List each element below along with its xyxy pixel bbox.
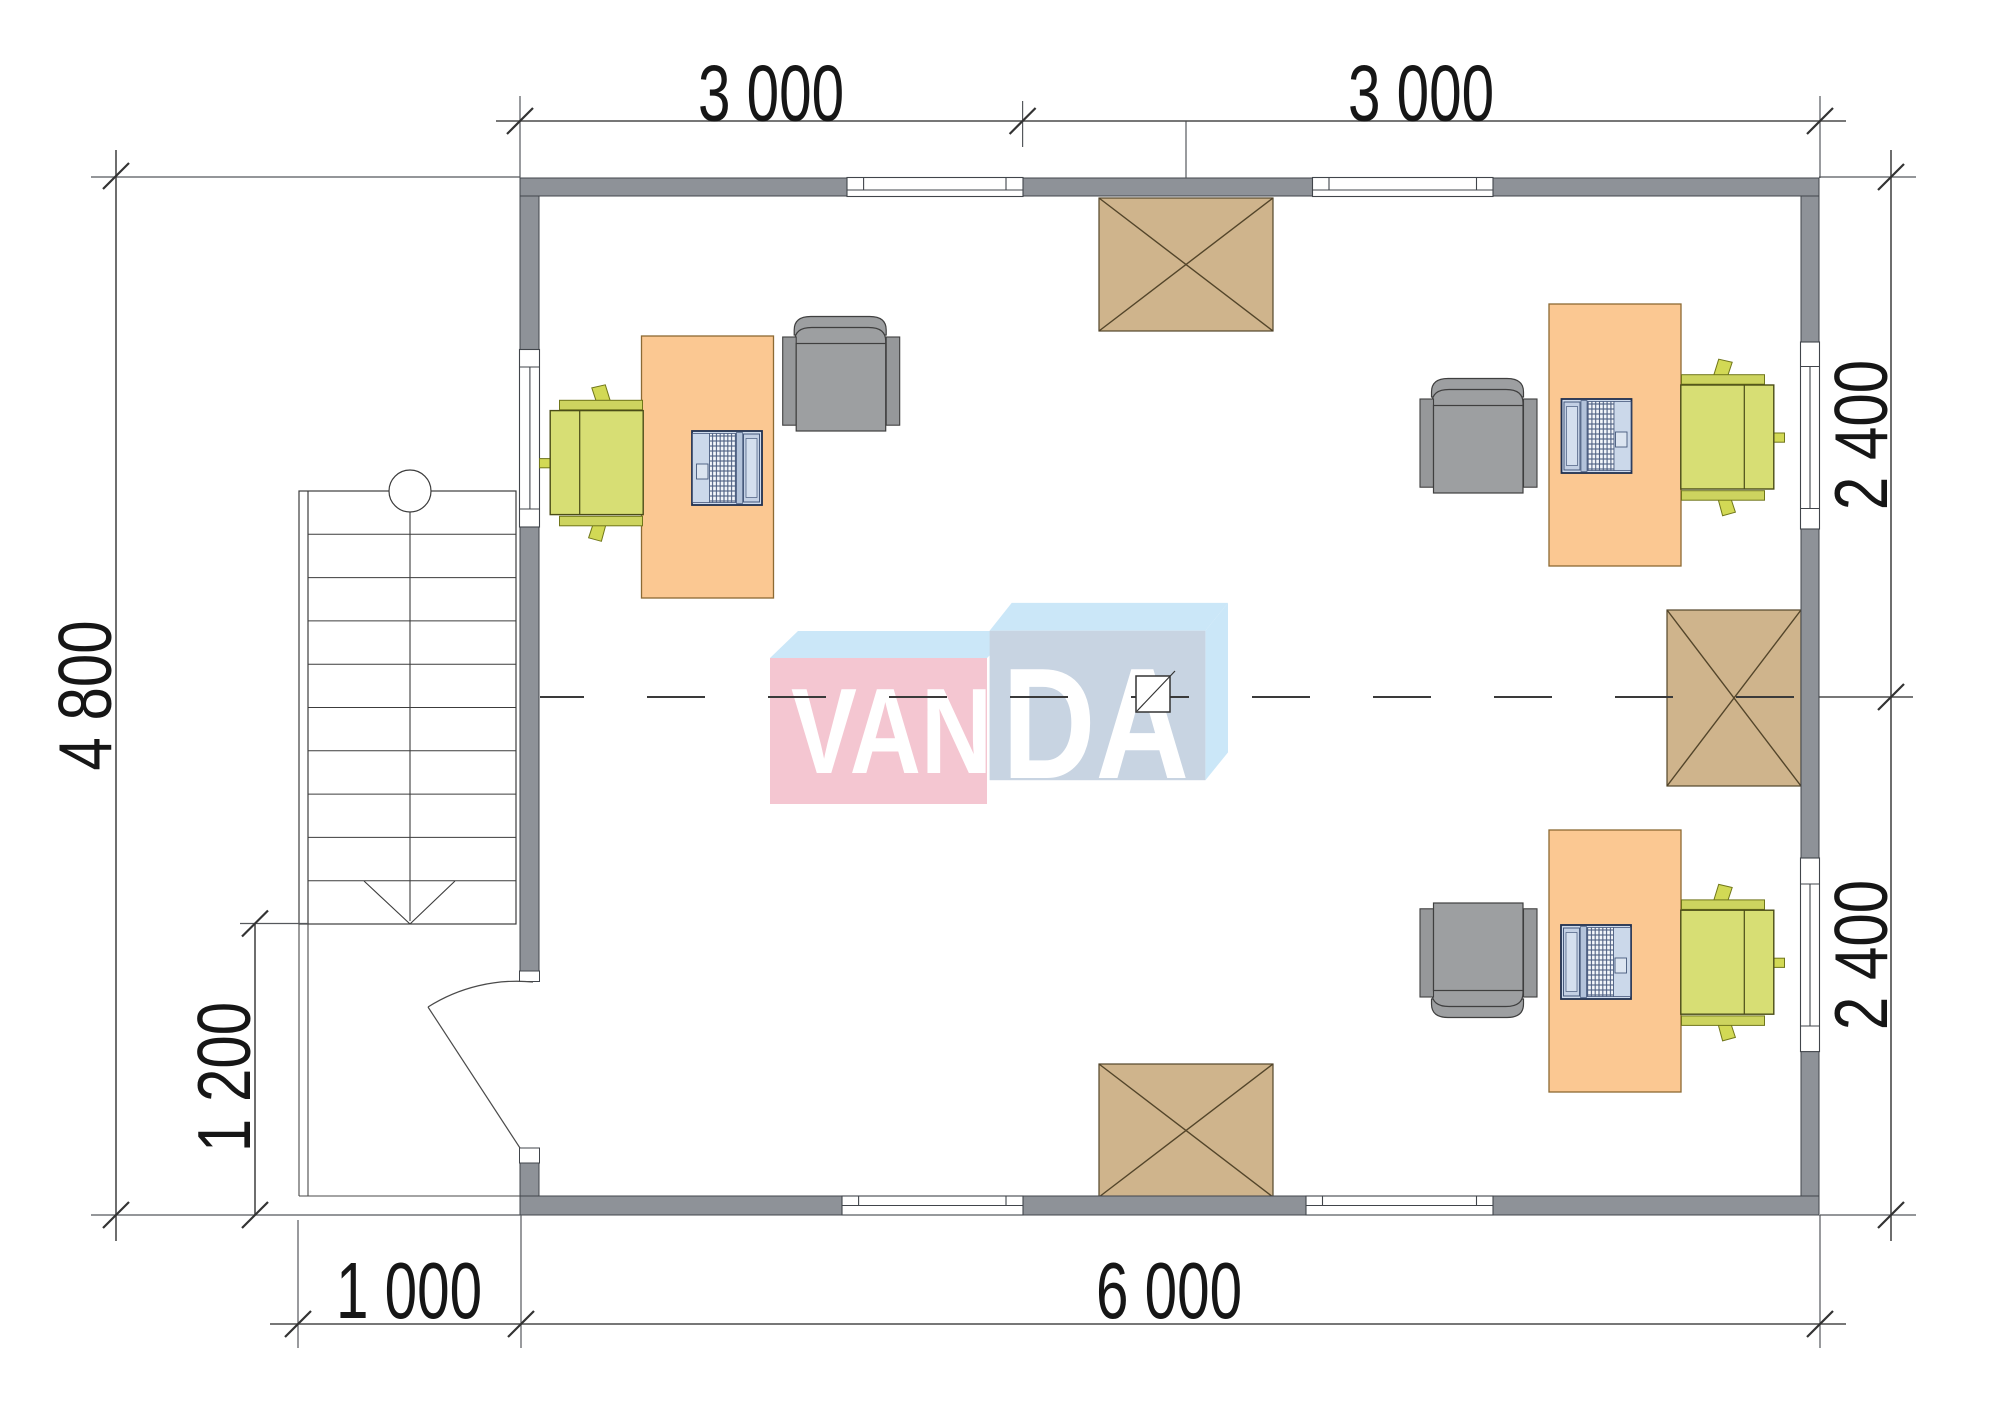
svg-text:DA: DA — [1002, 635, 1189, 812]
svg-text:2 400: 2 400 — [1821, 360, 1904, 510]
svg-text:6 000: 6 000 — [1096, 1246, 1242, 1335]
svg-text:4 800: 4 800 — [45, 620, 128, 770]
svg-text:3 000: 3 000 — [698, 49, 844, 138]
svg-text:1 200: 1 200 — [184, 1002, 267, 1152]
svg-text:VAN: VAN — [791, 663, 992, 799]
svg-text:1 000: 1 000 — [336, 1246, 482, 1335]
svg-text:3 000: 3 000 — [1348, 49, 1494, 138]
svg-text:2 400: 2 400 — [1821, 880, 1904, 1030]
